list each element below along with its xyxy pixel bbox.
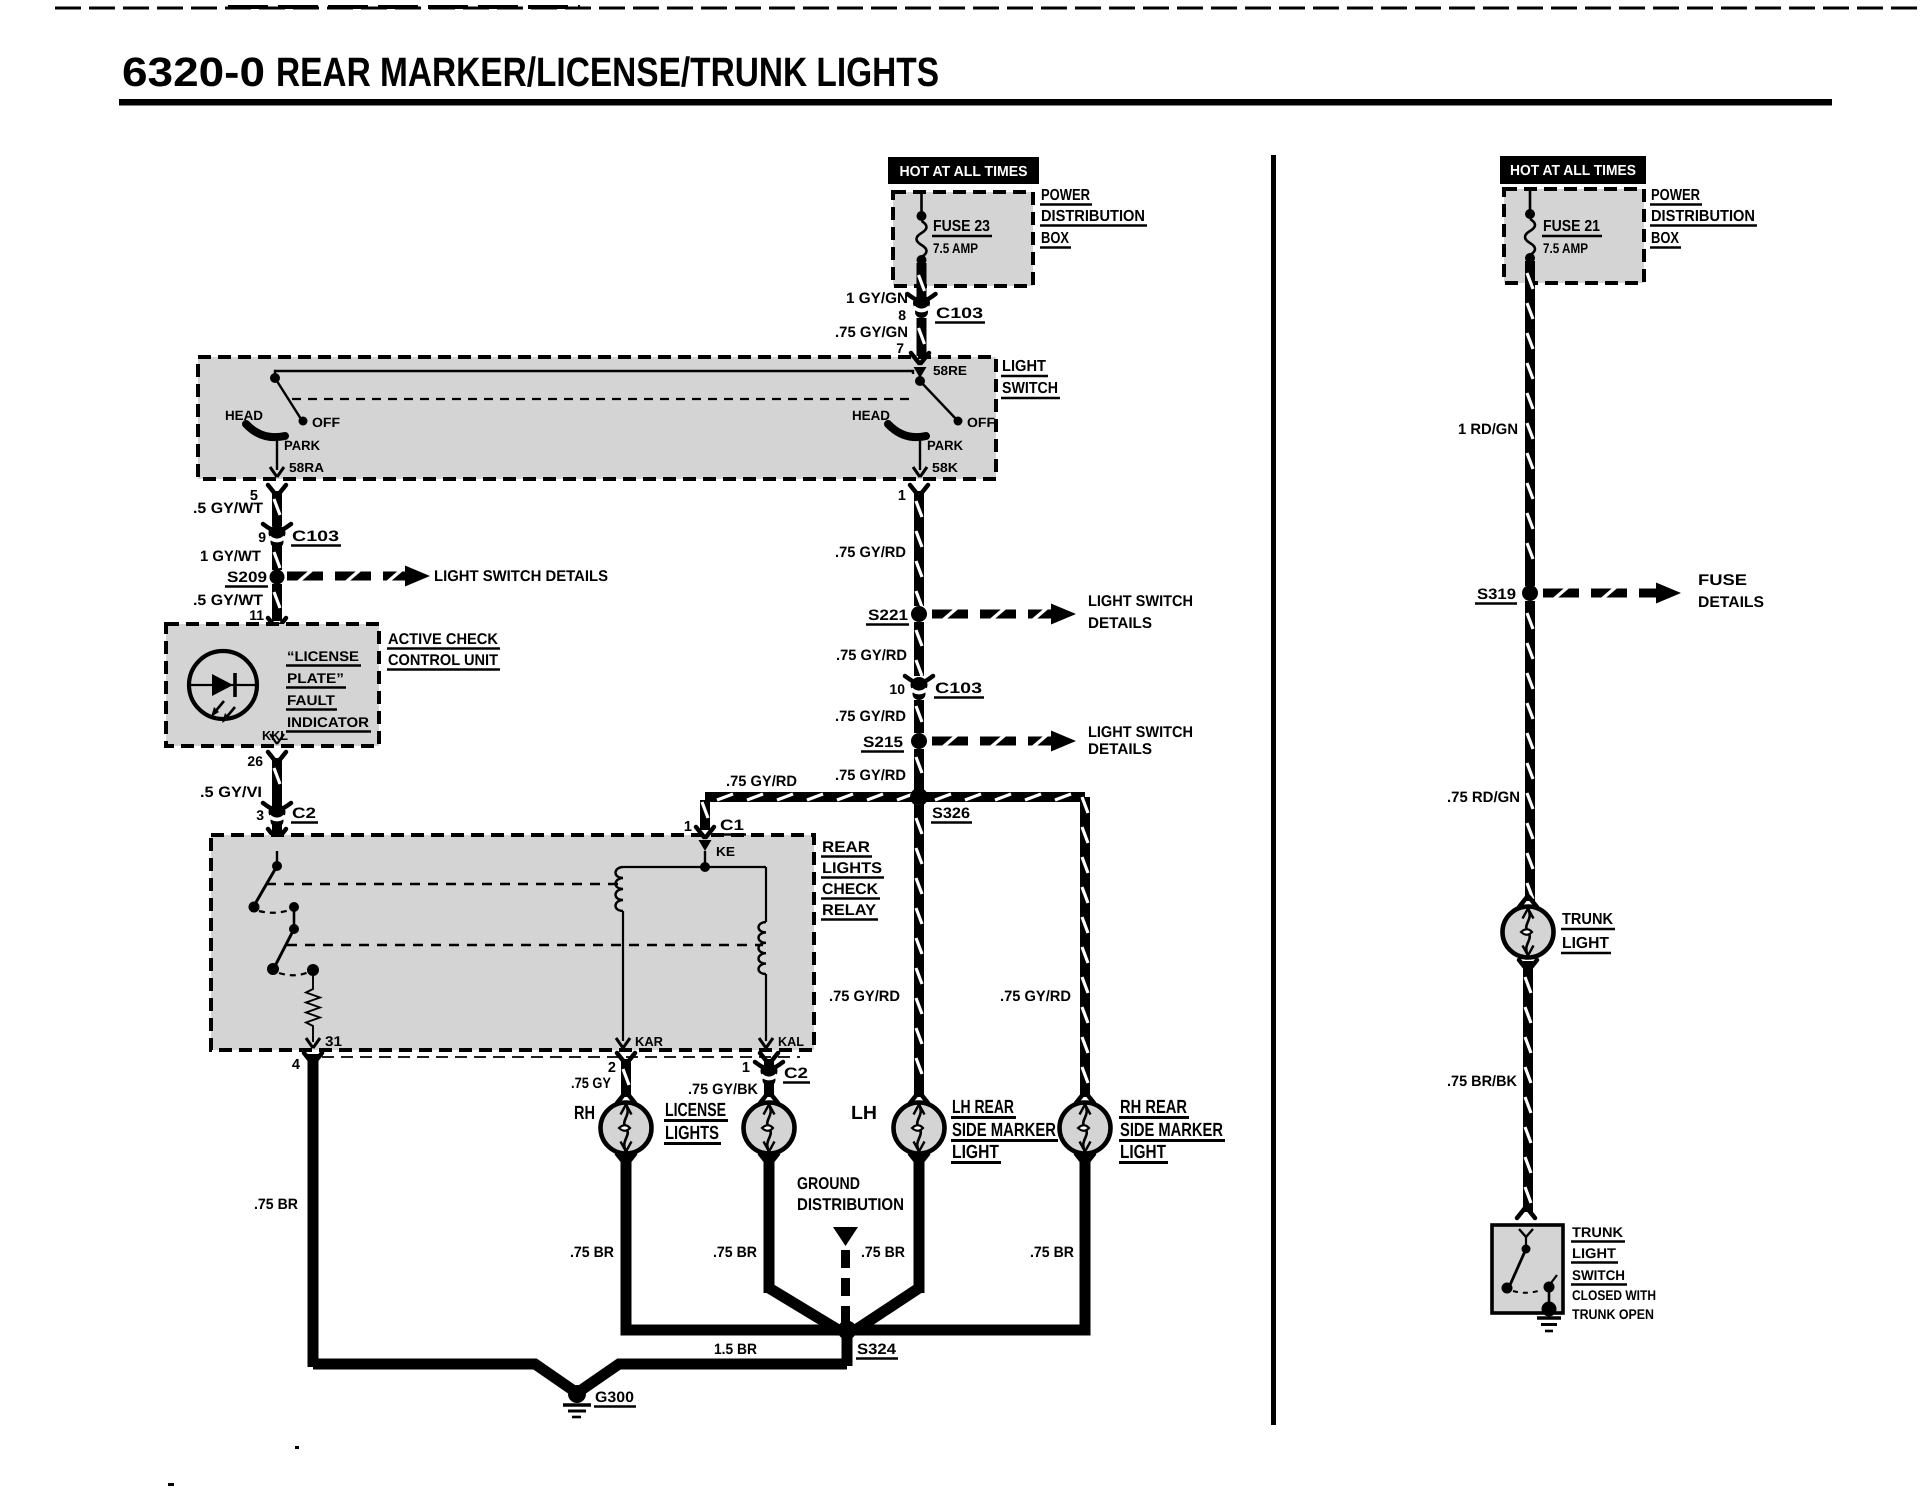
svg-text:1: 1: [742, 1060, 750, 1076]
svg-text:58RA: 58RA: [289, 460, 325, 475]
svg-text:1.5 BR: 1.5 BR: [714, 1341, 757, 1358]
svg-text:HOT AT ALL TIMES: HOT AT ALL TIMES: [900, 164, 1028, 180]
svg-text:G300: G300: [595, 1389, 634, 1406]
svg-text:DISTRIBUTION: DISTRIBUTION: [1651, 208, 1755, 225]
svg-text:1 RD/GN: 1 RD/GN: [1458, 421, 1518, 438]
svg-text:.75 BR: .75 BR: [713, 1244, 757, 1261]
svg-text:KAR: KAR: [635, 1034, 664, 1049]
svg-text:C103: C103: [935, 680, 982, 697]
svg-text:1 GY/GN: 1 GY/GN: [846, 290, 908, 307]
svg-text:SIDE MARKER: SIDE MARKER: [1120, 1120, 1223, 1141]
svg-text:31: 31: [325, 1033, 342, 1049]
svg-text:C2: C2: [784, 1065, 808, 1082]
svg-text:.75 GY/RD: .75 GY/RD: [836, 647, 907, 664]
svg-text:.75 BR/BK: .75 BR/BK: [1447, 1073, 1517, 1090]
svg-text:.75 BR: .75 BR: [861, 1244, 905, 1261]
svg-text:58K: 58K: [932, 460, 959, 475]
svg-text:TRUNK OPEN: TRUNK OPEN: [1572, 1306, 1654, 1322]
svg-text:LIGHT: LIGHT: [1562, 935, 1609, 952]
svg-text:.75 GY/RD: .75 GY/RD: [835, 544, 906, 561]
svg-text:PLATE”: PLATE”: [287, 670, 344, 686]
svg-text:TRUNK: TRUNK: [1562, 911, 1613, 928]
svg-text:ACTIVE CHECK: ACTIVE CHECK: [388, 631, 499, 648]
svg-text:CONTROL UNIT: CONTROL UNIT: [388, 652, 498, 669]
svg-text:REAR: REAR: [822, 839, 870, 856]
svg-text:PARK: PARK: [927, 438, 963, 453]
svg-text:9: 9: [258, 529, 266, 545]
svg-text:LIGHT: LIGHT: [952, 1142, 999, 1163]
svg-text:DISTRIBUTION: DISTRIBUTION: [1041, 208, 1145, 225]
svg-text:“LICENSE: “LICENSE: [287, 648, 359, 664]
svg-text:LIGHT SWITCH: LIGHT SWITCH: [1088, 593, 1193, 610]
svg-text:FUSE 21: FUSE 21: [1543, 218, 1600, 235]
svg-text:TRUNK: TRUNK: [1572, 1224, 1623, 1240]
svg-text:2: 2: [608, 1060, 616, 1076]
svg-text:LIGHT: LIGHT: [1572, 1245, 1616, 1261]
svg-text:BOX: BOX: [1041, 230, 1069, 247]
svg-text:S326: S326: [932, 805, 970, 822]
svg-text:.75 GY/RD: .75 GY/RD: [829, 988, 900, 1005]
svg-text:RH: RH: [574, 1103, 595, 1124]
svg-text:S324: S324: [857, 1341, 897, 1358]
svg-text:.75 GY: .75 GY: [571, 1075, 611, 1092]
svg-text:CLOSED WITH: CLOSED WITH: [1572, 1287, 1656, 1303]
svg-text:.75 GY/GN: .75 GY/GN: [835, 324, 908, 341]
svg-text:S215: S215: [863, 734, 903, 751]
svg-text:26: 26: [247, 753, 263, 769]
svg-text:FUSE 23: FUSE 23: [933, 218, 990, 235]
svg-text:REAR MARKER/LICENSE/TRUNK LIGH: REAR MARKER/LICENSE/TRUNK LIGHTS: [276, 49, 939, 95]
svg-text:DETAILS: DETAILS: [1698, 594, 1764, 611]
svg-text:LH REAR: LH REAR: [952, 1097, 1014, 1118]
svg-text:.75 GY/RD: .75 GY/RD: [1000, 988, 1071, 1005]
svg-text:LIGHT SWITCH: LIGHT SWITCH: [1088, 724, 1193, 741]
svg-text:KE: KE: [716, 844, 735, 859]
svg-text:CHECK: CHECK: [822, 881, 879, 898]
svg-text:.75 RD/GN: .75 RD/GN: [1447, 789, 1520, 806]
svg-text:PARK: PARK: [284, 438, 320, 453]
svg-text:FAULT: FAULT: [287, 692, 335, 708]
svg-text:FUSE: FUSE: [1698, 572, 1747, 589]
svg-text:POWER: POWER: [1041, 187, 1090, 204]
svg-text:1 GY/WT: 1 GY/WT: [200, 548, 261, 565]
svg-text:.75 BR: .75 BR: [1030, 1244, 1074, 1261]
svg-text:.75 BR: .75 BR: [570, 1244, 614, 1261]
svg-text:OFF: OFF: [967, 415, 995, 430]
svg-text:.75 GY/BK: .75 GY/BK: [688, 1081, 758, 1098]
svg-text:11: 11: [249, 607, 264, 623]
svg-text:DISTRIBUTION: DISTRIBUTION: [797, 1195, 904, 1214]
svg-text:C103: C103: [292, 528, 339, 545]
svg-text:.75 BR: .75 BR: [254, 1196, 298, 1213]
svg-text:LIGHT: LIGHT: [1120, 1142, 1166, 1163]
svg-text:BOX: BOX: [1651, 230, 1679, 247]
svg-text:1: 1: [898, 488, 906, 504]
svg-text:S319: S319: [1477, 586, 1516, 603]
svg-text:S209: S209: [227, 569, 267, 586]
svg-text:3: 3: [256, 807, 264, 823]
svg-text:SIDE MARKER: SIDE MARKER: [952, 1120, 1056, 1141]
svg-text:DETAILS: DETAILS: [1088, 741, 1152, 758]
svg-text:.75 GY/RD: .75 GY/RD: [835, 708, 906, 725]
svg-text:RELAY: RELAY: [822, 902, 877, 919]
svg-text:LH: LH: [851, 1103, 877, 1124]
svg-text:LIGHTS: LIGHTS: [822, 860, 882, 877]
svg-text:.5 GY/WT: .5 GY/WT: [193, 500, 263, 517]
svg-text:HEAD: HEAD: [852, 408, 890, 423]
svg-text:7.5 AMP: 7.5 AMP: [933, 240, 978, 256]
svg-text:INDICATOR: INDICATOR: [287, 714, 369, 730]
svg-text:7: 7: [896, 340, 904, 356]
svg-text:.5 GY/VI: .5 GY/VI: [200, 784, 262, 801]
svg-text:1: 1: [684, 819, 692, 835]
svg-text:LIGHT SWITCH DETAILS: LIGHT SWITCH DETAILS: [434, 568, 608, 585]
svg-text:LIGHT: LIGHT: [1002, 358, 1046, 375]
svg-text:GROUND: GROUND: [797, 1174, 860, 1193]
svg-text:KAL: KAL: [778, 1034, 804, 1049]
svg-text:C103: C103: [936, 305, 983, 322]
svg-text:4: 4: [292, 1057, 300, 1073]
svg-text:6320-0: 6320-0: [122, 49, 265, 95]
svg-text:OFF: OFF: [312, 415, 340, 430]
svg-text:S221: S221: [868, 607, 908, 624]
svg-text:POWER: POWER: [1651, 187, 1700, 204]
svg-text:10: 10: [889, 681, 905, 697]
svg-text:SWITCH: SWITCH: [1002, 380, 1058, 397]
svg-text:LICENSE: LICENSE: [665, 1100, 726, 1121]
svg-text:.75 GY/RD: .75 GY/RD: [835, 767, 906, 784]
svg-text:C2: C2: [292, 805, 316, 822]
svg-text:RH REAR: RH REAR: [1120, 1097, 1187, 1118]
svg-text:LIGHTS: LIGHTS: [665, 1123, 719, 1144]
svg-text:8: 8: [898, 307, 906, 323]
svg-text:58RE: 58RE: [933, 363, 967, 378]
svg-text:C1: C1: [720, 817, 744, 834]
svg-text:7.5 AMP: 7.5 AMP: [1543, 240, 1588, 256]
svg-text:SWITCH: SWITCH: [1572, 1267, 1625, 1283]
svg-text:HOT AT ALL TIMES: HOT AT ALL TIMES: [1510, 163, 1636, 179]
svg-text:DETAILS: DETAILS: [1088, 615, 1152, 632]
svg-text:.75 GY/RD: .75 GY/RD: [726, 773, 797, 790]
